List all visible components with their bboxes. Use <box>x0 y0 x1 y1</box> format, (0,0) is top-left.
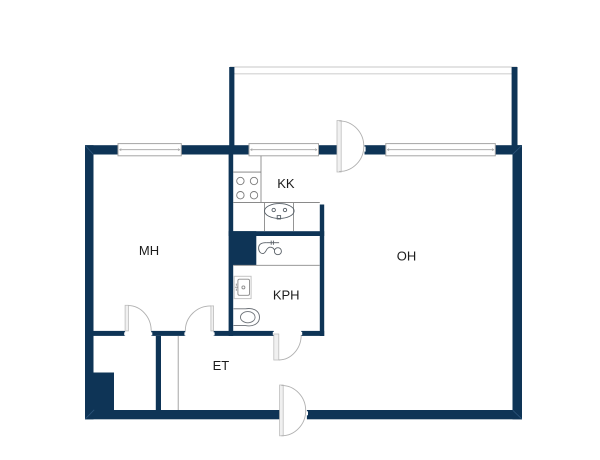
svg-text:KPH: KPH <box>273 287 300 302</box>
svg-text:ET: ET <box>213 358 230 373</box>
svg-text:KK: KK <box>277 176 295 191</box>
svg-text:OH: OH <box>397 249 417 264</box>
svg-text:MH: MH <box>139 243 159 258</box>
